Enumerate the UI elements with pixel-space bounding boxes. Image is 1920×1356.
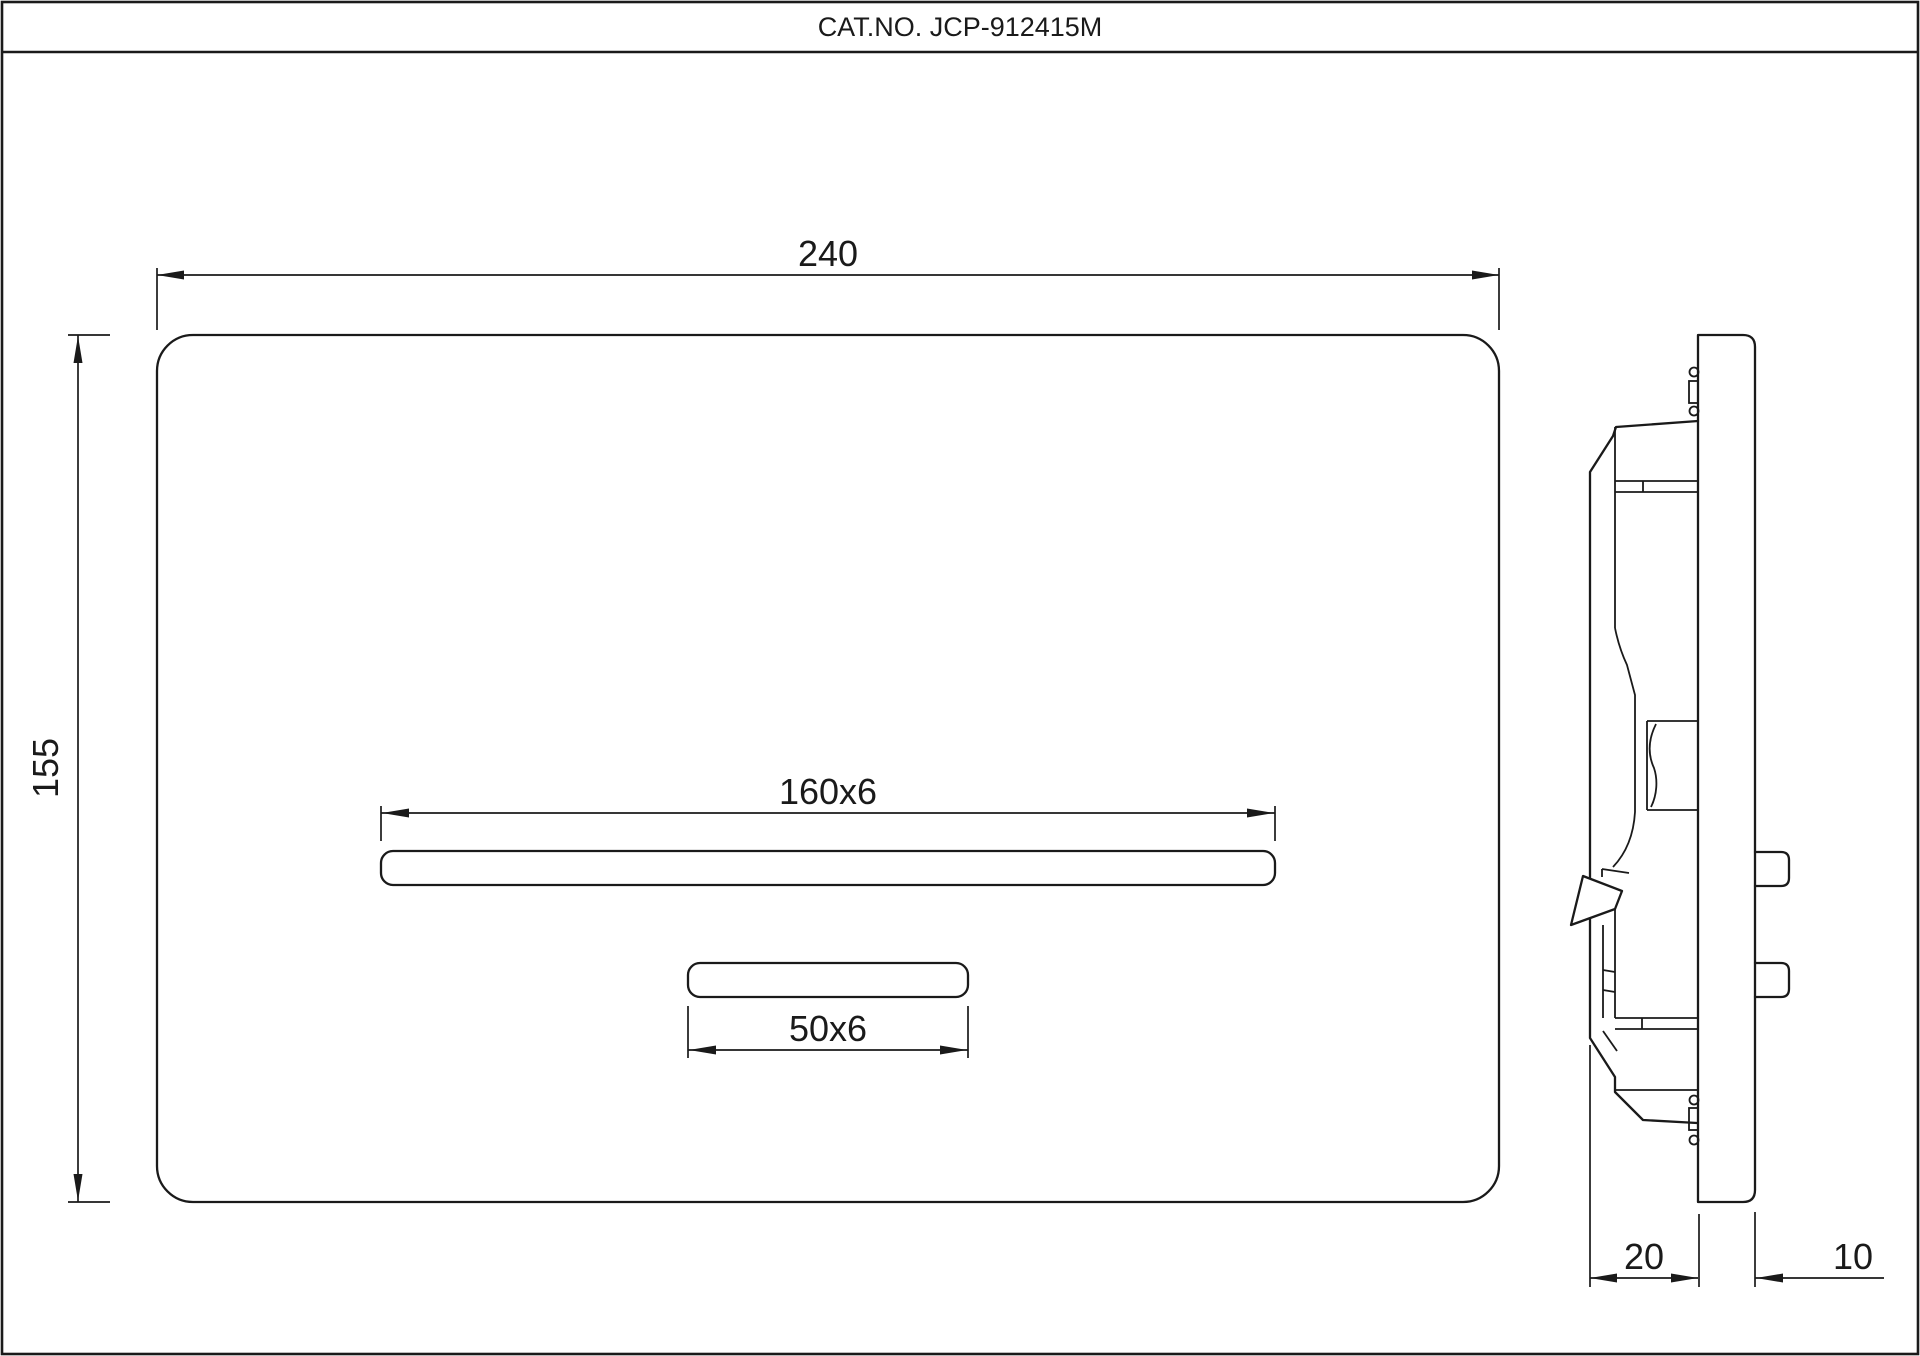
clip-body — [1689, 1108, 1698, 1130]
dim-label-small-slot: 50x6 — [789, 1008, 867, 1049]
dim-small-slot-50x6: 50x6 — [688, 1006, 968, 1058]
dim-thickness-10: 10 — [1755, 1236, 1884, 1283]
technical-drawing-canvas: CAT.NO. JCP-912415M 240 155 — [0, 0, 1920, 1356]
drawing-sheet: CAT.NO. JCP-912415M 240 155 — [0, 0, 1920, 1356]
dim-label-large-slot: 160x6 — [779, 771, 877, 812]
dim-arrow-left — [157, 271, 184, 280]
dim-arrow-left — [689, 1046, 716, 1055]
lower-flange — [1615, 1018, 1698, 1029]
side-large-button — [1755, 852, 1789, 886]
small-button-slot — [688, 963, 968, 997]
dim-width-240: 240 — [157, 233, 1499, 330]
dim-arrow-down — [74, 1174, 83, 1201]
side-view: 20 10 — [1571, 335, 1884, 1287]
dim-label-thickness: 10 — [1833, 1236, 1873, 1277]
dim-large-slot-160x6: 160x6 — [381, 771, 1275, 841]
dim-arrow-right — [940, 1046, 967, 1055]
upper-flange — [1615, 481, 1698, 492]
dim-arrow-right — [1472, 271, 1499, 280]
dim-arrow-left — [1756, 1274, 1783, 1283]
side-plate-profile — [1698, 335, 1755, 1202]
dim-label-width: 240 — [798, 233, 858, 274]
front-plate-outline — [157, 335, 1499, 1202]
dim-arrow-left — [1590, 1274, 1617, 1283]
dim-arrow-right — [1671, 1274, 1698, 1283]
dim-arrow-right — [1247, 809, 1274, 818]
dim-arrow-left — [382, 809, 409, 818]
pusher-spring — [1650, 724, 1657, 807]
clip-body — [1689, 381, 1698, 403]
dim-label-depth: 20 — [1624, 1236, 1664, 1277]
large-button-slot — [381, 851, 1275, 885]
dim-label-height: 155 — [25, 738, 66, 798]
front-view: 240 155 160x6 50x6 — [25, 233, 1499, 1202]
catalog-number-title: CAT.NO. JCP-912415M — [818, 12, 1103, 42]
dim-height-155: 155 — [25, 335, 110, 1202]
dim-arrow-up — [74, 336, 83, 363]
housing-bottom-chamfer — [1603, 1031, 1617, 1051]
side-small-button — [1755, 963, 1789, 997]
